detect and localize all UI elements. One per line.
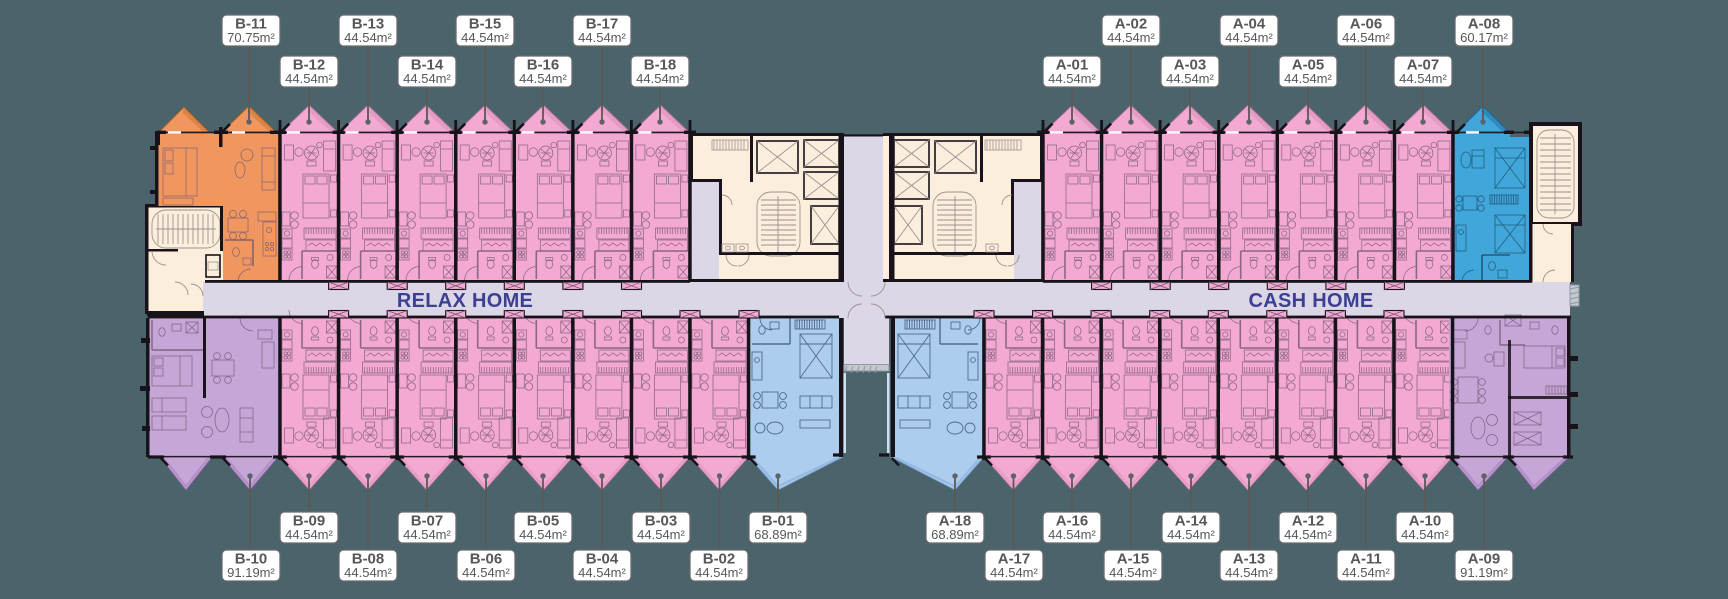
svg-text:44.54m²: 44.54m² [1167, 527, 1215, 542]
svg-text:44.54m²: 44.54m² [461, 30, 509, 45]
svg-text:91.19m²: 91.19m² [1460, 565, 1508, 580]
svg-text:44.54m²: 44.54m² [1048, 71, 1096, 86]
svg-text:44.54m²: 44.54m² [285, 71, 333, 86]
svg-text:44.54m²: 44.54m² [285, 527, 333, 542]
svg-text:68.89m²: 68.89m² [931, 527, 979, 542]
svg-text:44.54m²: 44.54m² [1109, 565, 1157, 580]
svg-text:91.19m²: 91.19m² [227, 565, 275, 580]
svg-text:RELAX HOME: RELAX HOME [397, 290, 533, 312]
svg-text:44.54m²: 44.54m² [1166, 71, 1214, 86]
svg-text:44.54m²: 44.54m² [519, 527, 567, 542]
svg-text:44.54m²: 44.54m² [1399, 71, 1447, 86]
svg-text:44.54m²: 44.54m² [578, 565, 626, 580]
svg-text:44.54m²: 44.54m² [1284, 527, 1332, 542]
svg-text:44.54m²: 44.54m² [1284, 71, 1332, 86]
svg-text:70.75m²: 70.75m² [227, 30, 275, 45]
svg-text:68.89m²: 68.89m² [754, 527, 802, 542]
svg-text:44.54m²: 44.54m² [990, 565, 1038, 580]
svg-text:44.54m²: 44.54m² [403, 71, 451, 86]
svg-text:44.54m²: 44.54m² [403, 527, 451, 542]
svg-text:44.54m²: 44.54m² [344, 565, 392, 580]
svg-text:44.54m²: 44.54m² [578, 30, 626, 45]
svg-text:44.54m²: 44.54m² [636, 71, 684, 86]
svg-text:44.54m²: 44.54m² [1225, 30, 1273, 45]
svg-text:44.54m²: 44.54m² [1342, 30, 1390, 45]
svg-text:CASH HOME: CASH HOME [1249, 290, 1374, 312]
svg-text:44.54m²: 44.54m² [462, 565, 510, 580]
svg-text:44.54m²: 44.54m² [344, 30, 392, 45]
svg-text:44.54m²: 44.54m² [1048, 527, 1096, 542]
svg-text:44.54m²: 44.54m² [637, 527, 685, 542]
svg-text:60.17m²: 60.17m² [1460, 30, 1508, 45]
svg-text:44.54m²: 44.54m² [1225, 565, 1273, 580]
svg-text:44.54m²: 44.54m² [1401, 527, 1449, 542]
svg-text:44.54m²: 44.54m² [519, 71, 567, 86]
svg-text:44.54m²: 44.54m² [695, 565, 743, 580]
svg-text:44.54m²: 44.54m² [1107, 30, 1155, 45]
svg-text:44.54m²: 44.54m² [1342, 565, 1390, 580]
